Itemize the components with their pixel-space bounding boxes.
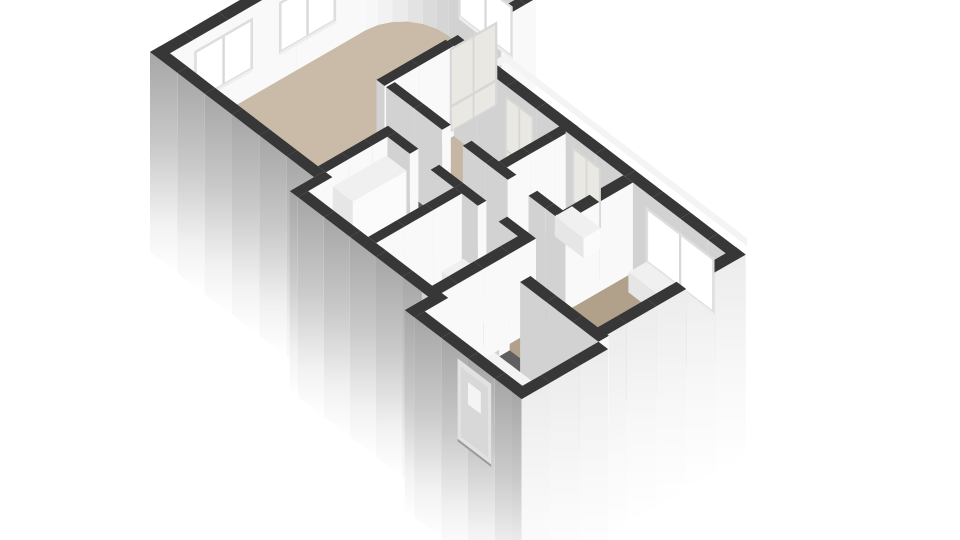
walls-layer — [150, 0, 747, 540]
wall-east-entry — [512, 375, 551, 540]
floorplan-viewport — [0, 0, 960, 540]
floorplan-svg — [0, 0, 960, 540]
